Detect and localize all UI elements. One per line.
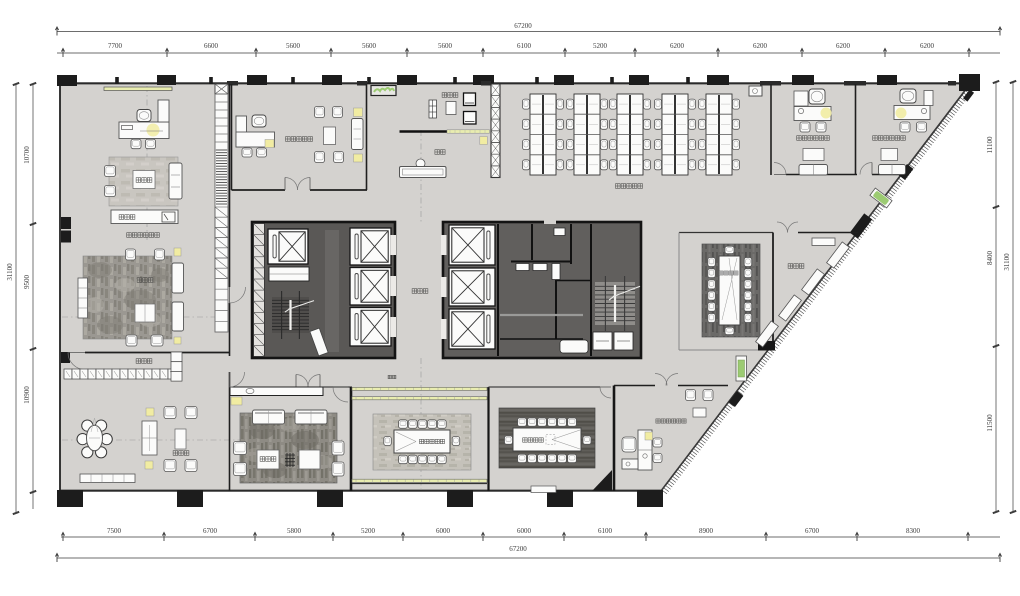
svg-text:5200: 5200 xyxy=(361,527,376,535)
svg-text:6200: 6200 xyxy=(920,42,935,50)
svg-text:31100: 31100 xyxy=(1003,253,1011,271)
svg-text:6200: 6200 xyxy=(836,42,851,50)
svg-text:11100: 11100 xyxy=(986,136,994,153)
svg-text:8900: 8900 xyxy=(699,527,714,535)
svg-text:5800: 5800 xyxy=(287,527,302,535)
svg-text:6000: 6000 xyxy=(517,527,532,535)
svg-text:5600: 5600 xyxy=(438,42,453,50)
svg-text:8400: 8400 xyxy=(986,251,994,266)
svg-text:67200: 67200 xyxy=(514,22,532,30)
svg-text:8300: 8300 xyxy=(906,527,921,535)
svg-text:67200: 67200 xyxy=(509,545,527,553)
svg-text:6700: 6700 xyxy=(805,527,820,535)
svg-text:6200: 6200 xyxy=(670,42,685,50)
svg-text:10900: 10900 xyxy=(23,386,31,404)
svg-text:6100: 6100 xyxy=(598,527,613,535)
svg-text:6100: 6100 xyxy=(517,42,532,50)
svg-text:10700: 10700 xyxy=(23,146,31,164)
svg-text:31100: 31100 xyxy=(6,263,14,281)
svg-text:5200: 5200 xyxy=(593,42,608,50)
svg-text:7700: 7700 xyxy=(108,42,123,50)
svg-text:7500: 7500 xyxy=(107,527,122,535)
svg-text:6600: 6600 xyxy=(204,42,219,50)
svg-text:9500: 9500 xyxy=(23,275,31,290)
svg-text:6000: 6000 xyxy=(436,527,451,535)
svg-text:6700: 6700 xyxy=(203,527,218,535)
svg-text:11500: 11500 xyxy=(986,414,994,432)
svg-text:5600: 5600 xyxy=(362,42,377,50)
svg-text:5600: 5600 xyxy=(286,42,301,50)
svg-text:6200: 6200 xyxy=(753,42,768,50)
